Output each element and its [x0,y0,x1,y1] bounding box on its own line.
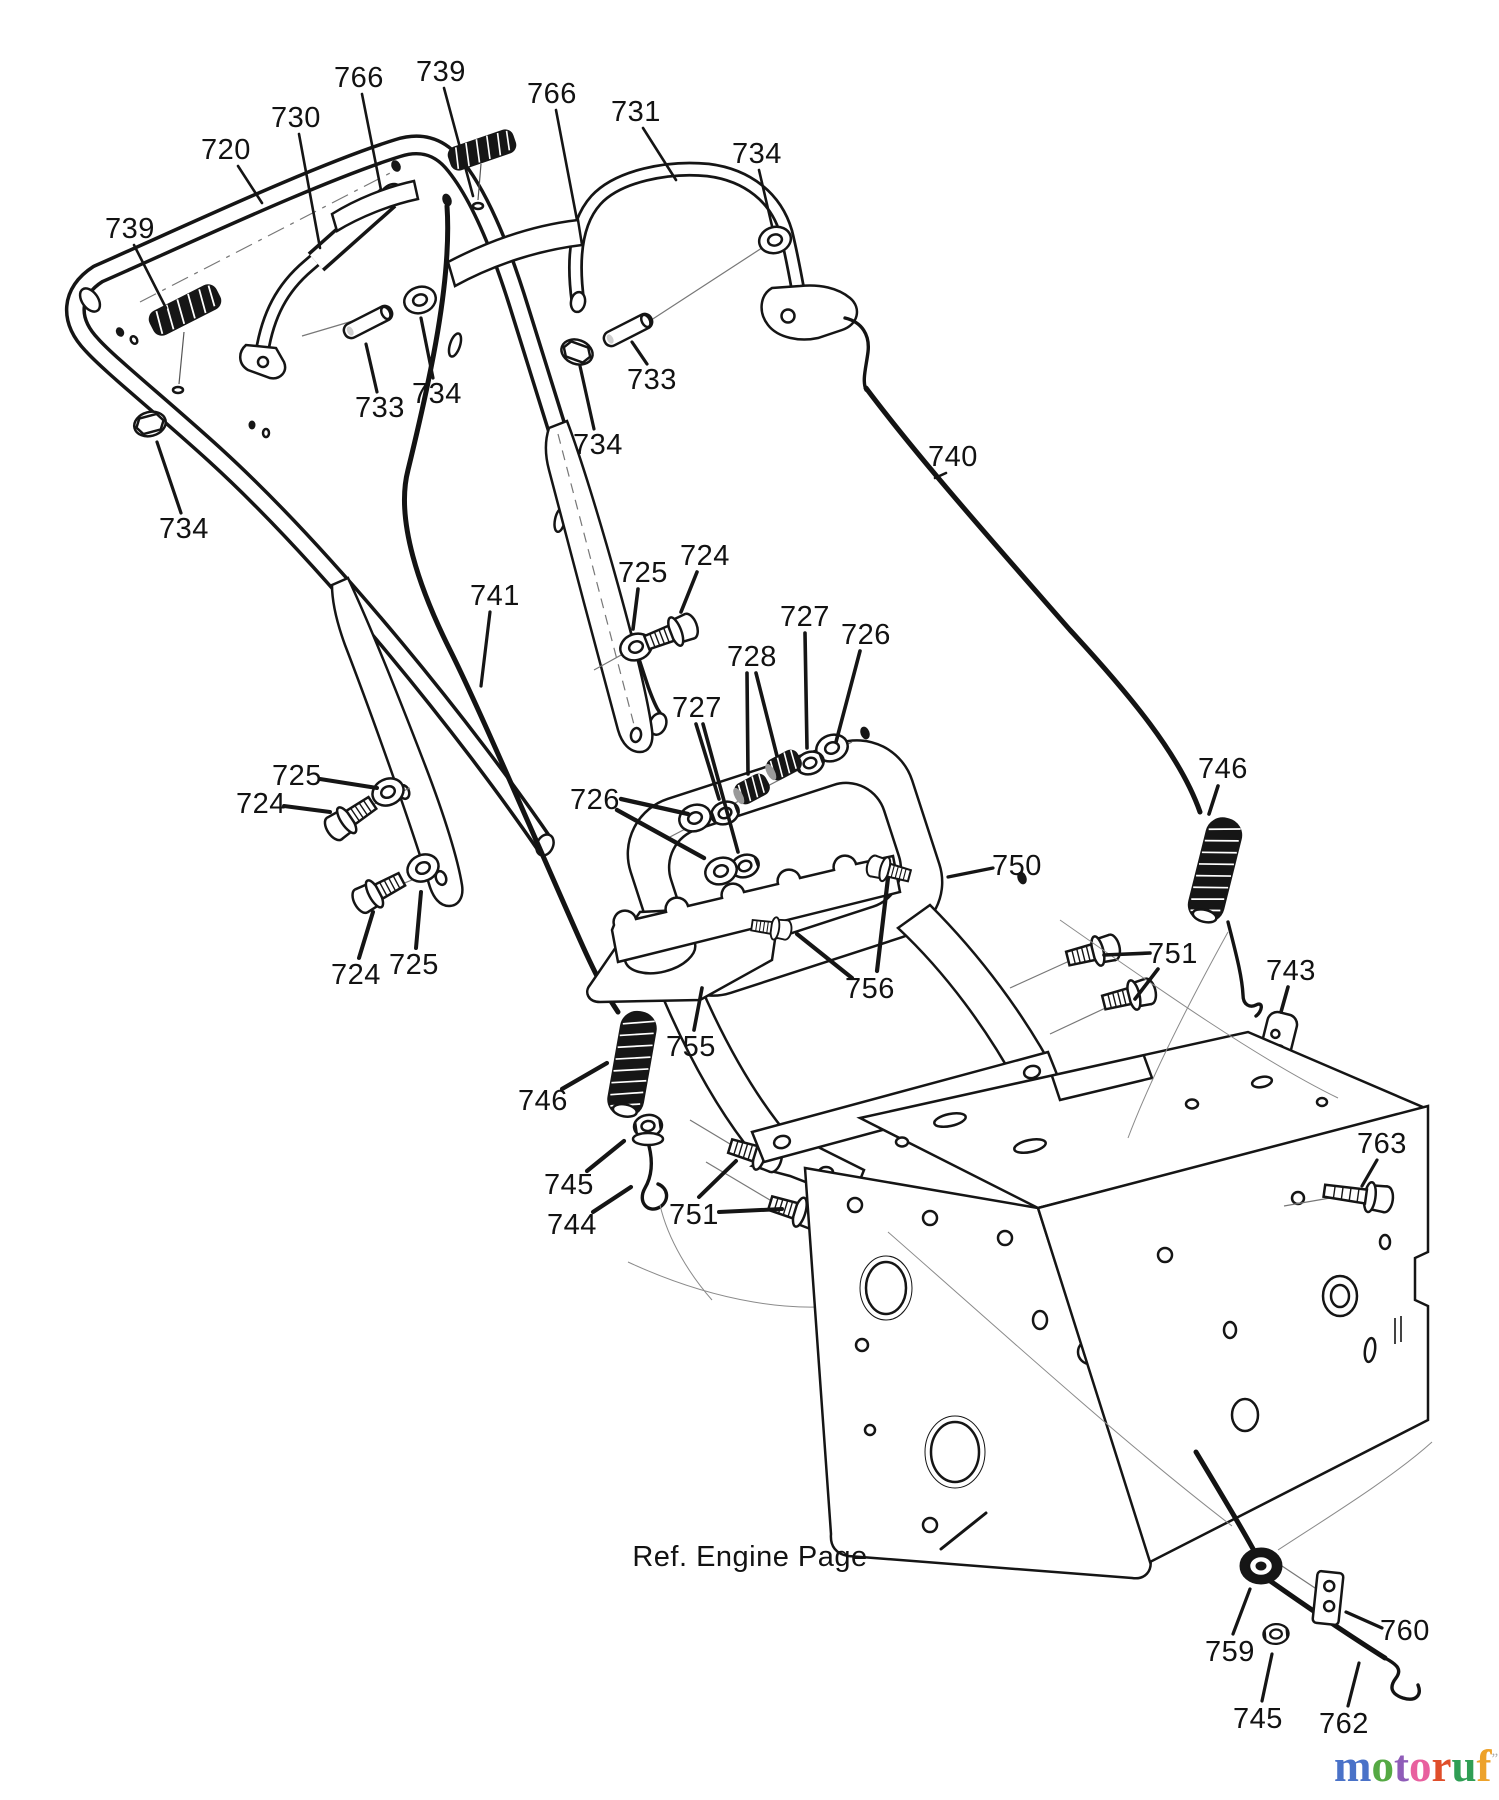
callout-728: 728 [727,641,777,673]
callout-725: 725 [389,949,439,981]
callout-727: 727 [780,601,830,633]
exploded-parts-drawing: 7207307667397667317347397337347347337347… [0,0,1499,1800]
callout-750: 750 [992,850,1042,882]
callout-762: 762 [1319,1708,1369,1740]
callout-734: 734 [159,513,209,545]
callout-743: 743 [1266,955,1316,987]
callout-734: 734 [412,378,462,410]
callout-745: 745 [1233,1703,1283,1735]
callout-724: 724 [680,540,730,572]
part-760-clip [1312,1571,1343,1625]
callout-746: 746 [518,1085,568,1117]
callout-745: 745 [544,1169,594,1201]
callout-739: 739 [416,56,466,88]
logo-letter: f [1477,1741,1492,1791]
callout-755: 755 [666,1031,716,1063]
callout-731: 731 [611,96,661,128]
callout-766: 766 [527,78,577,110]
logo-letter: t [1394,1741,1409,1791]
callout-751: 751 [669,1199,719,1231]
callout-734: 734 [573,429,623,461]
callout-759: 759 [1205,1636,1255,1668]
callout-725: 725 [618,557,668,589]
callout-720: 720 [201,134,251,166]
callout-766: 766 [334,62,384,94]
callout-760: 760 [1380,1615,1430,1647]
callout-756: 756 [845,973,895,1005]
callout-leader [747,673,748,774]
callout-727: 727 [672,692,722,724]
callout-751: 751 [1148,938,1198,970]
logo-letter: m [1334,1741,1372,1791]
callout-733: 733 [355,392,405,424]
diagram-canvas: 7207307667397667317347397337347347337347… [0,0,1499,1800]
motoruf-logo[interactable]: motoruf”.de [1334,1744,1499,1789]
logo-letter: o [1372,1741,1395,1791]
callout-724: 724 [236,788,286,820]
callout-740: 740 [928,441,978,473]
callout-746: 746 [1198,753,1248,785]
callout-726: 726 [841,619,891,651]
ref-engine-page-note: Ref. Engine Page [632,1541,867,1573]
logo-letter: u [1451,1741,1476,1791]
callout-734: 734 [732,138,782,170]
callout-726: 726 [570,784,620,816]
logo-letter: o [1409,1741,1432,1791]
callout-733: 733 [627,364,677,396]
callout-leader [1104,953,1150,955]
callout-763: 763 [1357,1128,1407,1160]
callout-724: 724 [331,959,381,991]
callout-730: 730 [271,102,321,134]
callout-leader [805,633,807,748]
callout-744: 744 [547,1209,597,1241]
logo-letter: r [1432,1741,1452,1791]
callout-739: 739 [105,213,155,245]
callout-741: 741 [470,580,520,612]
